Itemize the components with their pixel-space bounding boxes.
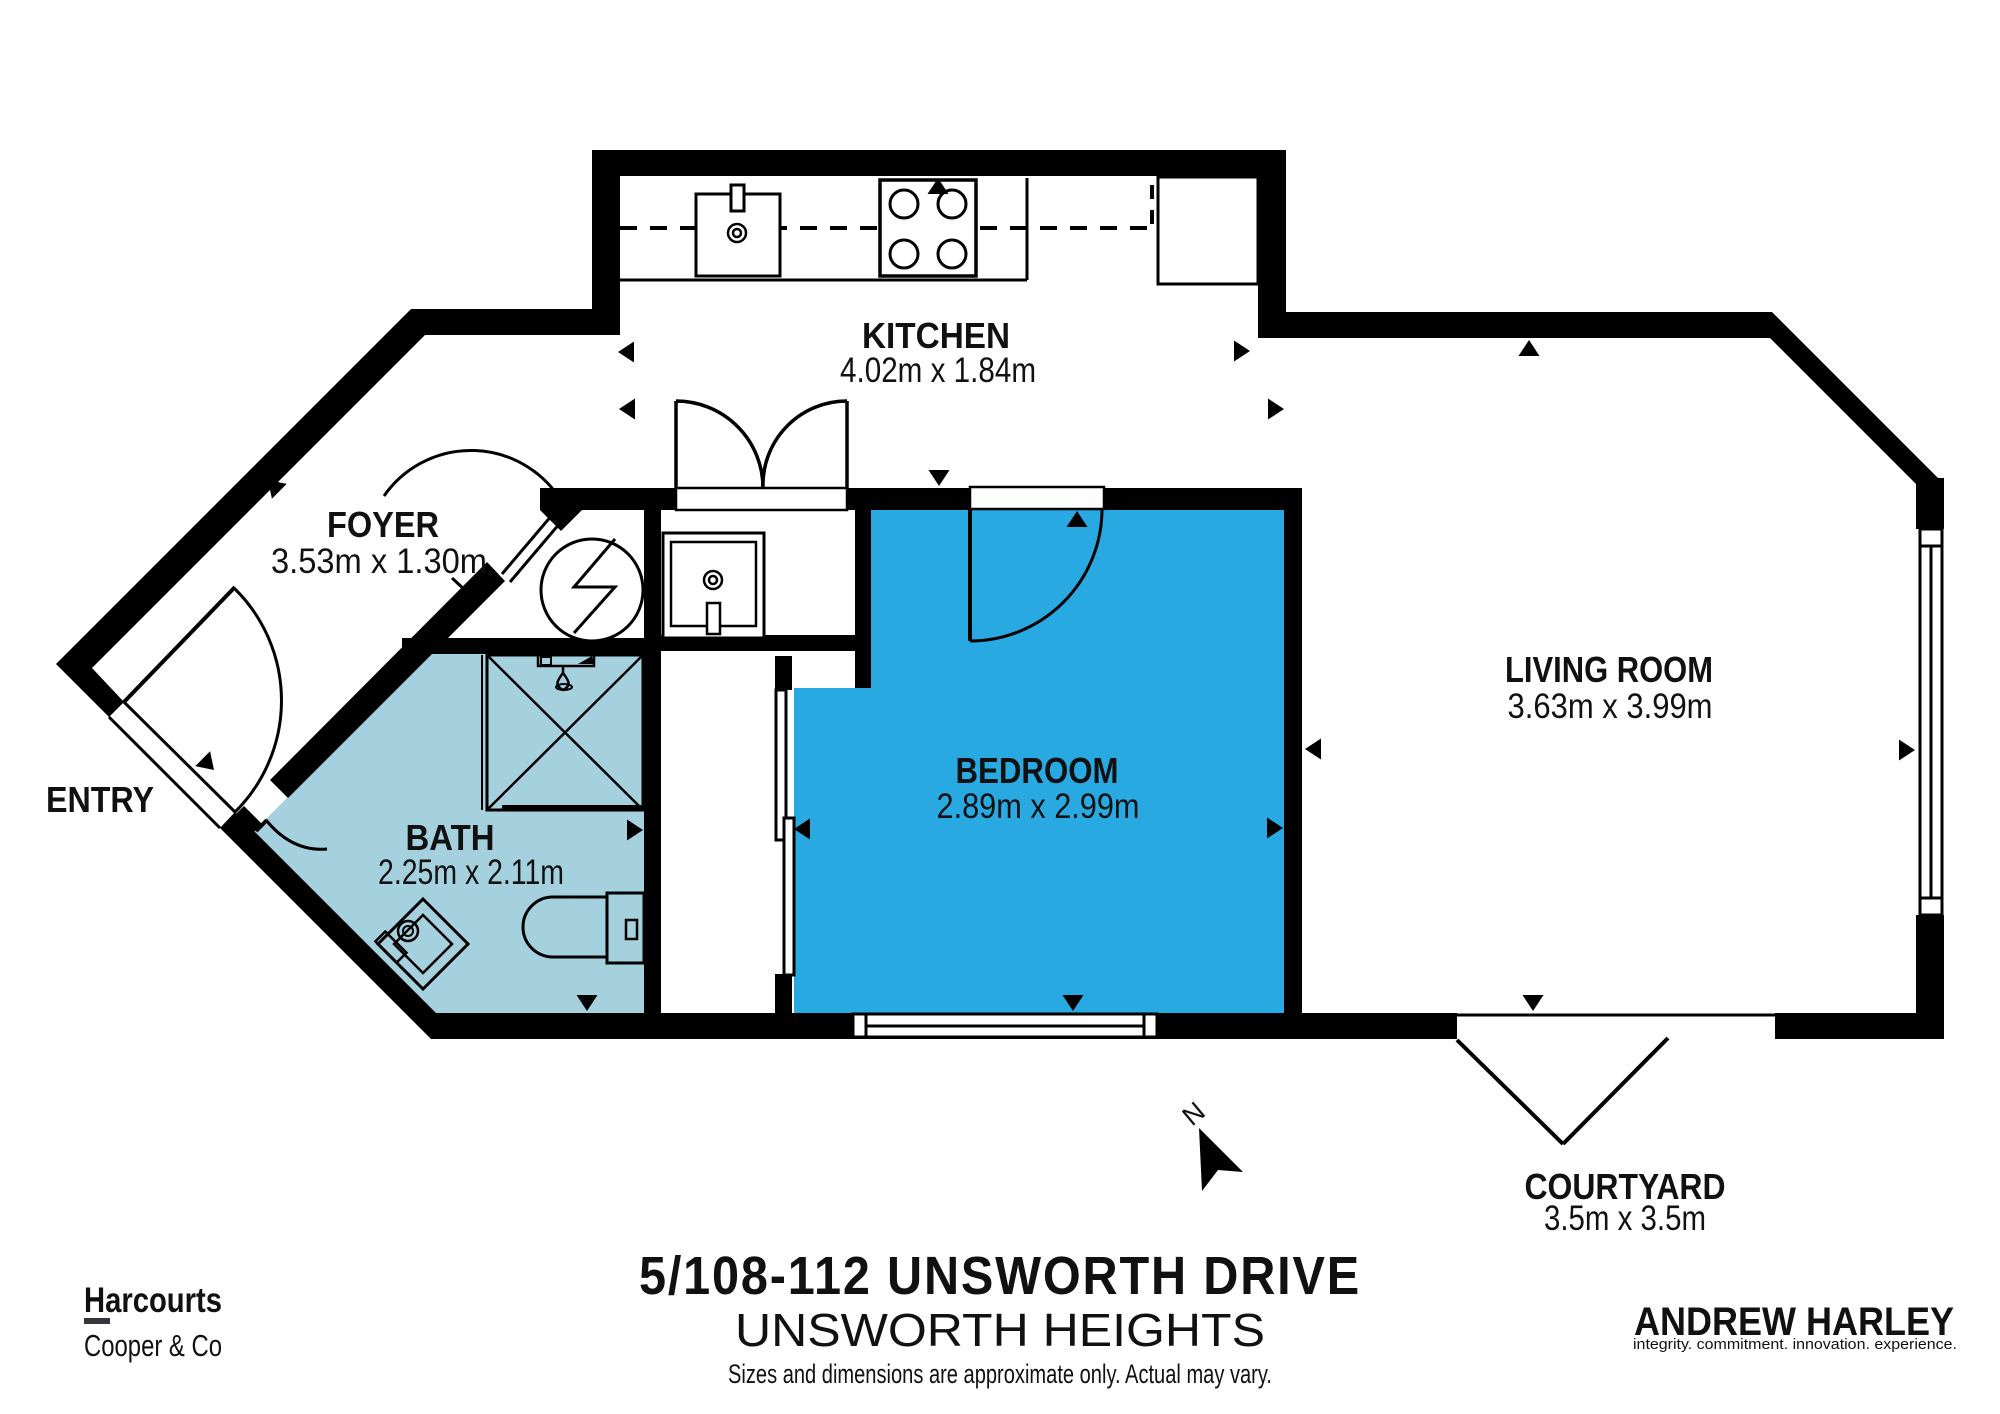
svg-text:BATH: BATH [406, 817, 495, 858]
svg-text:Harcourts: Harcourts [84, 1281, 222, 1320]
svg-text:ENTRY: ENTRY [46, 779, 154, 820]
svg-text:KITCHEN: KITCHEN [862, 315, 1010, 356]
svg-text:2.89m x 2.99m: 2.89m x 2.99m [937, 787, 1140, 826]
svg-text:Sizes and dimensions are appro: Sizes and dimensions are approximate onl… [728, 1359, 1272, 1389]
svg-text:Cooper & Co: Cooper & Co [84, 1328, 222, 1363]
svg-text:BEDROOM: BEDROOM [956, 750, 1119, 791]
svg-text:4.02m x 1.84m: 4.02m x 1.84m [840, 351, 1036, 390]
svg-text:3.5m x 3.5m: 3.5m x 3.5m [1544, 1199, 1706, 1238]
svg-text:2.25m x 2.11m: 2.25m x 2.11m [378, 853, 564, 892]
svg-text:integrity. commitment. innovat: integrity. commitment. innovation. exper… [1633, 1337, 1957, 1353]
svg-text:3.53m x 1.30m: 3.53m x 1.30m [271, 542, 487, 581]
svg-text:FOYER: FOYER [327, 504, 439, 545]
svg-text:UNSWORTH HEIGHTS: UNSWORTH HEIGHTS [735, 1304, 1265, 1356]
svg-text:LIVING ROOM: LIVING ROOM [1505, 649, 1713, 690]
svg-text:5/108-112 UNSWORTH DRIVE: 5/108-112 UNSWORTH DRIVE [639, 1246, 1361, 1306]
svg-text:3.63m x 3.99m: 3.63m x 3.99m [1508, 687, 1713, 726]
